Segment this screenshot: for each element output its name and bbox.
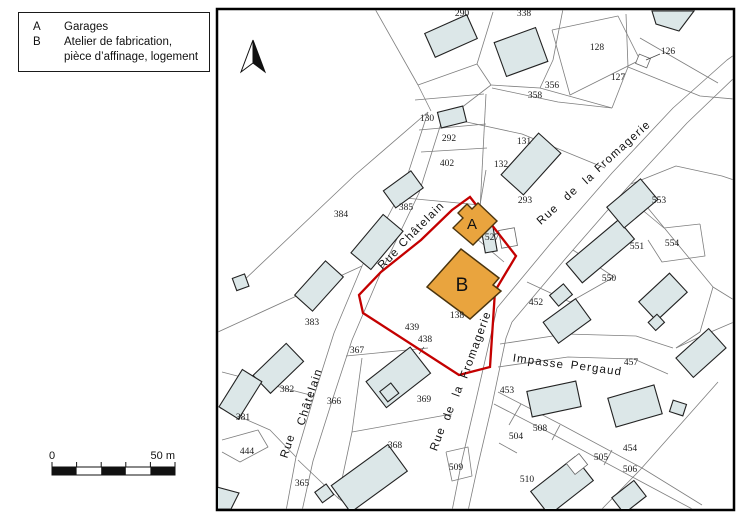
parcel-label-438: 438 — [418, 335, 433, 345]
parcel-label-385: 385 — [399, 203, 414, 213]
parcel-label-506: 506 — [623, 465, 638, 475]
parcel-label-509: 509 — [449, 463, 464, 473]
parcel-label-290: 290 — [455, 9, 470, 19]
scale-bar-ticks — [52, 462, 175, 467]
parcel-label-338: 338 — [517, 9, 532, 19]
parcel-label-439: 439 — [405, 323, 420, 333]
cadastral-map: 2903381281261273563581302924021311322933… — [0, 0, 738, 522]
parcel-label-504: 504 — [509, 432, 524, 442]
parcel-label-550: 550 — [602, 274, 617, 284]
parcel-label-553: 553 — [652, 196, 667, 206]
parcel-label-365: 365 — [295, 479, 310, 489]
parcel-label-368: 368 — [388, 441, 403, 451]
parcel-label-131: 131 — [517, 137, 532, 147]
parcel-label-358: 358 — [528, 91, 543, 101]
parcel-label-126: 126 — [661, 47, 676, 57]
parcel-label-293: 293 — [518, 196, 533, 206]
parcel-label-508: 508 — [533, 424, 548, 434]
parcel-label-367: 367 — [350, 346, 365, 356]
scale-bar-segment — [150, 467, 175, 475]
parcel-label-132: 132 — [494, 160, 509, 170]
parcel-label-402: 402 — [440, 159, 455, 169]
scale-end-label: 50 m — [151, 450, 175, 462]
parcel-label-505: 505 — [594, 453, 609, 463]
parcel-label-382: 382 — [280, 385, 295, 395]
scale-bar-segment — [101, 467, 126, 475]
parcel-label-356: 356 — [545, 81, 560, 91]
parcel-label-453: 453 — [500, 386, 515, 396]
parcel-label-128: 128 — [590, 43, 605, 53]
parcel-label-383: 383 — [305, 318, 320, 328]
parcel-label-127: 127 — [611, 73, 626, 83]
scale-start-label: 0 — [49, 450, 55, 462]
parcel-label-384: 384 — [334, 210, 349, 220]
scale-bar: 0 50 m — [49, 450, 175, 475]
parcel-label-551: 551 — [630, 242, 645, 252]
parcel-label-452: 452 — [529, 298, 544, 308]
parcel-label-130: 130 — [420, 114, 435, 124]
unit-label-B: B — [456, 275, 469, 296]
parcel-label-292: 292 — [442, 134, 457, 144]
parcel-label-138: 138 — [450, 311, 465, 321]
parcel-label-510: 510 — [520, 475, 535, 485]
parcel-label-554: 554 — [665, 239, 680, 249]
parcel-label-366: 366 — [327, 397, 342, 407]
cadastral-map-page: A Garages B Atelier de fabrication, pièc… — [0, 0, 738, 522]
parcel-label-527: 527 — [485, 233, 500, 243]
parcel-label-444: 444 — [240, 447, 255, 457]
parcel-label-457: 457 — [624, 358, 639, 368]
scale-bar-segment — [52, 467, 77, 475]
parcel-label-369: 369 — [417, 395, 432, 405]
unit-label-A: A — [467, 216, 477, 233]
parcel-label-381: 381 — [236, 413, 251, 423]
parcel-label-454: 454 — [623, 444, 638, 454]
